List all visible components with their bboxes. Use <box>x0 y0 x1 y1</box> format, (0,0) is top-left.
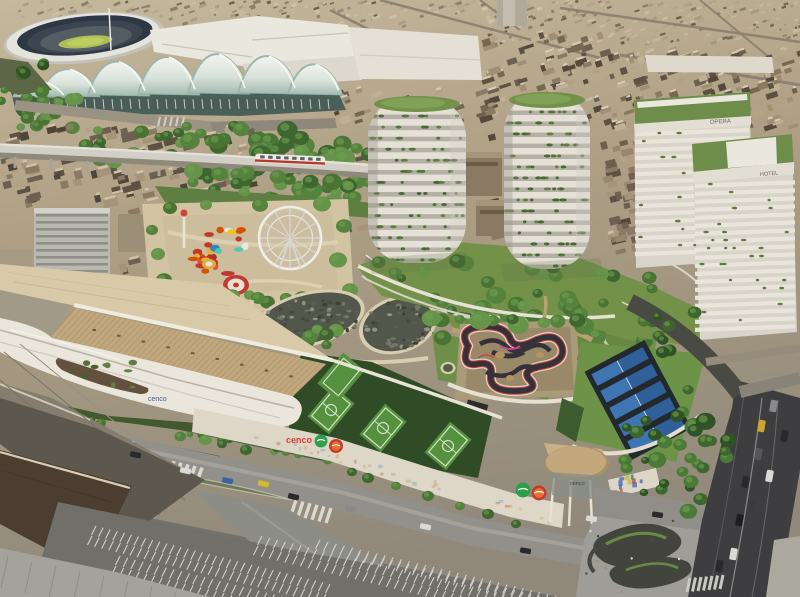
svg-text:cenco: cenco <box>286 435 313 445</box>
svg-text:cenco: cenco <box>148 396 167 403</box>
svg-text:HOTEL: HOTEL <box>760 171 779 178</box>
svg-text:cenco: cenco <box>570 481 585 487</box>
